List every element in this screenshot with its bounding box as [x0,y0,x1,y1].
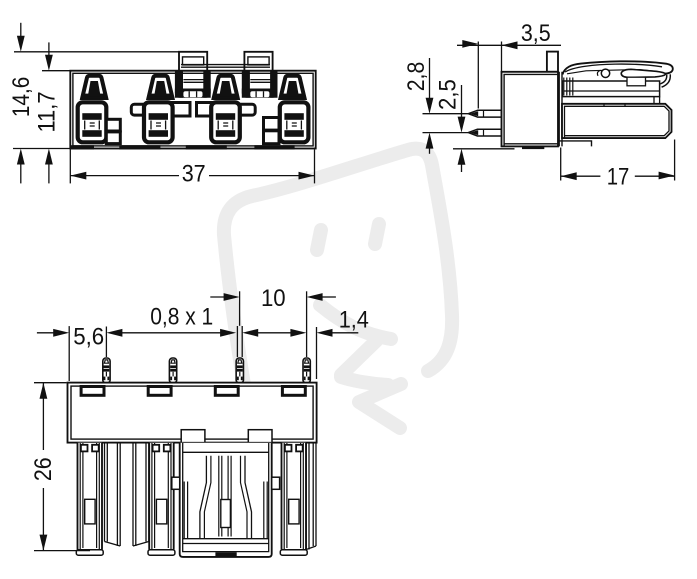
svg-text:2,5: 2,5 [435,79,462,110]
svg-text:5,6: 5,6 [73,324,104,351]
svg-text:3,5: 3,5 [521,20,551,47]
svg-text:0,8 x 1: 0,8 x 1 [150,304,213,331]
svg-text:2,8: 2,8 [403,62,430,92]
svg-text:17: 17 [607,164,630,191]
svg-text:1,4: 1,4 [339,307,369,334]
svg-text:37: 37 [182,161,206,188]
svg-text:14,6: 14,6 [8,77,35,118]
svg-text:26: 26 [30,457,57,481]
svg-text:11,7: 11,7 [34,92,61,133]
svg-text:10: 10 [261,285,286,312]
